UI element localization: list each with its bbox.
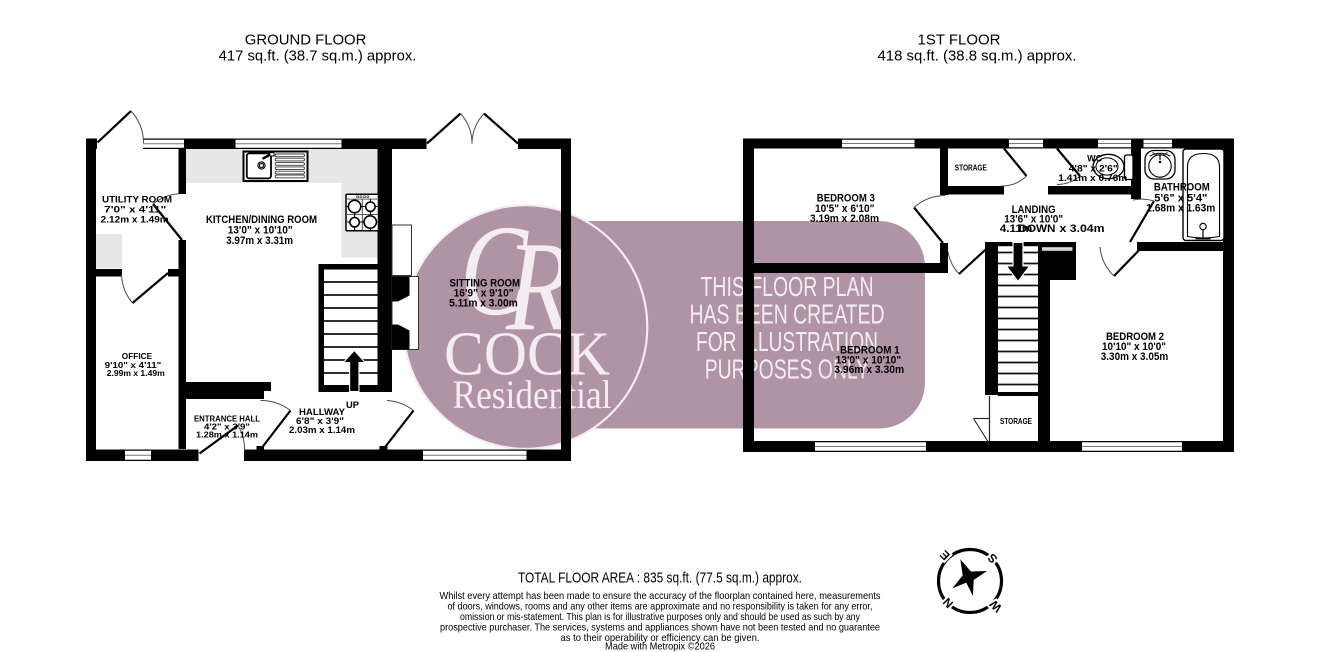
svg-text:prospective purchaser. The ser: prospective purchaser. The services, sys… (440, 622, 880, 633)
svg-text:x 3.04m: x 3.04m (1060, 223, 1105, 235)
svg-text:HAS BEEN CREATED: HAS BEEN CREATED (690, 299, 885, 330)
svg-text:Residential: Residential (453, 372, 612, 417)
svg-text:1.41m x 0.76m: 1.41m x 0.76m (1058, 173, 1127, 184)
svg-text:1.28m x 1.14m: 1.28m x 1.14m (196, 429, 258, 439)
svg-text:TOTAL FLOOR AREA : 835 sq.ft.: TOTAL FLOOR AREA : 835 sq.ft. (77.5 sq.m… (518, 571, 802, 587)
svg-text:UTILITY ROOM: UTILITY ROOM (102, 195, 172, 205)
svg-text:Whilst every attempt has been: Whilst every attempt has been made to en… (440, 591, 881, 602)
svg-text:2.12m x 1.49m: 2.12m x 1.49m (101, 215, 169, 225)
svg-text:UP: UP (346, 400, 359, 410)
svg-text:3.96m x 3.30m: 3.96m x 3.30m (834, 364, 904, 376)
svg-text:1ST FLOOR: 1ST FLOOR (918, 33, 1001, 49)
svg-text:2.03m x 1.14m: 2.03m x 1.14m (289, 425, 355, 435)
svg-text:418 sq.ft. (38.8 sq.m.) approx: 418 sq.ft. (38.8 sq.m.) approx. (878, 49, 1077, 65)
svg-text:1.68m x 1.63m: 1.68m x 1.63m (1146, 203, 1215, 215)
svg-text:STORAGE: STORAGE (955, 163, 987, 173)
svg-text:THIS FLOOR PLAN: THIS FLOOR PLAN (701, 271, 874, 302)
svg-text:Made with Metropix ©2026: Made with Metropix ©2026 (605, 642, 715, 652)
svg-text:3.19m x 2.08m: 3.19m x 2.08m (810, 213, 879, 225)
svg-text:GROUND FLOOR: GROUND FLOOR (245, 33, 367, 49)
svg-text:DOWN: DOWN (1019, 223, 1056, 235)
svg-text:omission or mis-statement. Thi: omission or mis-statement. This plan is … (460, 612, 861, 623)
svg-text:5.11m x 3.00m: 5.11m x 3.00m (449, 297, 518, 309)
svg-text:of doors, windows, rooms and a: of doors, windows, rooms and any other i… (448, 601, 873, 612)
svg-text:7'0" x 4'11": 7'0" x 4'11" (104, 204, 166, 214)
svg-text:STORAGE: STORAGE (1000, 416, 1032, 426)
svg-text:3.97m x 3.31m: 3.97m x 3.31m (226, 235, 293, 247)
svg-text:2.99m x 1.49m: 2.99m x 1.49m (107, 368, 165, 378)
svg-text:417 sq.ft. (38.7 sq.m.) approx: 417 sq.ft. (38.7 sq.m.) approx. (219, 49, 417, 65)
svg-text:3.30m x 3.05m: 3.30m x 3.05m (1101, 351, 1169, 363)
